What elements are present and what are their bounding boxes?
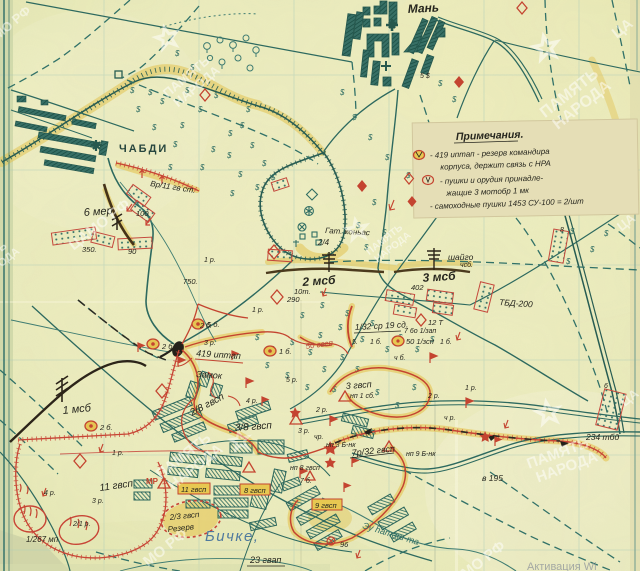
svg-text:Замок: Замок <box>196 369 223 381</box>
svg-text:234 тбд: 234 тбд <box>585 432 620 442</box>
svg-text:$: $ <box>261 159 267 168</box>
svg-text:$: $ <box>147 88 153 97</box>
svg-text:2 р.: 2 р. <box>315 407 328 414</box>
svg-text:$: $ <box>394 401 400 410</box>
svg-text:750.: 750. <box>183 277 198 286</box>
svg-text:$: $ <box>254 183 260 192</box>
svg-text:3 гвсп: 3 гвсп <box>345 379 372 391</box>
svg-text:чсб.: чсб. <box>460 261 473 269</box>
svg-text:$: $ <box>129 86 135 95</box>
svg-text:1/267 мп.: 1/267 мп. <box>26 535 60 544</box>
svg-text:1 б.: 1 б. <box>370 338 382 346</box>
svg-text:$: $ <box>239 121 245 130</box>
svg-text:2/1 р.: 2/1 р. <box>72 521 91 528</box>
svg-text:9 гвсп: 9 гвсп <box>315 501 337 510</box>
svg-text:$: $ <box>359 335 365 344</box>
svg-text:МР: МР <box>146 477 159 486</box>
svg-text:$: $ <box>565 257 571 266</box>
svg-text:$: $ <box>321 365 327 374</box>
svg-text:2 б.: 2 б. <box>199 322 212 330</box>
svg-text:$: $ <box>299 311 305 320</box>
svg-text:$: $ <box>589 245 595 254</box>
svg-text:$: $ <box>414 345 420 354</box>
svg-text:$: $ <box>374 388 380 397</box>
svg-text:$: $ <box>229 189 235 198</box>
svg-text:$: $ <box>264 361 270 370</box>
svg-text:$: $ <box>179 121 185 130</box>
svg-text:Активация Wi: Активация Wi <box>527 561 597 571</box>
svg-text:$: $ <box>437 79 443 88</box>
svg-text:8 гвсп: 8 гвсп <box>244 486 266 495</box>
svg-text:$: $ <box>237 170 243 179</box>
svg-text:$: $ <box>304 383 310 392</box>
svg-text:$: $ <box>451 95 457 104</box>
svg-text:$: $ <box>197 105 203 114</box>
svg-text:1 б.: 1 б. <box>440 338 452 346</box>
svg-text:ч р.: ч р. <box>444 415 455 422</box>
svg-text:в 195: в 195 <box>482 473 503 483</box>
svg-text:2 р.: 2 р. <box>427 393 440 400</box>
svg-text:100: 100 <box>136 209 149 218</box>
svg-text:$: $ <box>226 151 232 160</box>
svg-text:$: $ <box>384 345 390 354</box>
svg-text:$: $ <box>367 133 373 142</box>
svg-text:50 1/зсп: 50 1/зсп <box>406 337 434 346</box>
svg-text:нп 9 Б-нк: нп 9 Б-нк <box>406 451 436 458</box>
svg-text:290: 290 <box>286 295 300 304</box>
svg-text:96: 96 <box>340 540 349 549</box>
svg-text:$: $ <box>411 383 417 392</box>
svg-text:2/4: 2/4 <box>317 238 330 247</box>
svg-text:7 6о 1/зап: 7 6о 1/зап <box>404 328 436 335</box>
svg-text:3 р.: 3 р. <box>92 498 104 505</box>
svg-text:2 б.: 2 б. <box>99 423 113 432</box>
svg-text:2 мсб: 2 мсб <box>301 273 336 289</box>
svg-text:$: $ <box>159 97 165 106</box>
svg-text:$: $ <box>245 105 251 114</box>
svg-text:$: $ <box>317 331 323 340</box>
svg-text:4 р.: 4 р. <box>44 490 56 497</box>
svg-text:$: $ <box>254 333 260 342</box>
svg-text:12 Т: 12 Т <box>428 318 444 327</box>
svg-text:3 р.: 3 р. <box>298 428 310 435</box>
svg-text:$: $ <box>172 140 178 149</box>
svg-text:23 гвап: 23 гвап <box>249 555 281 565</box>
svg-text:$: $ <box>319 301 325 310</box>
svg-text:5 р.: 5 р. <box>286 377 298 384</box>
svg-text:1 р.: 1 р. <box>112 450 124 457</box>
svg-text:Мань: Мань <box>407 0 439 16</box>
svg-text:1 р.: 1 р. <box>252 307 264 314</box>
svg-text:6: 6 <box>604 383 608 390</box>
svg-text:$: $ <box>603 229 609 238</box>
svg-text:шайго: шайго <box>448 252 474 262</box>
svg-text:1 р.: 1 р. <box>204 257 216 264</box>
svg-text:$: $ <box>199 163 205 172</box>
svg-text:нп 8 гвсп: нп 8 гвсп <box>290 465 320 472</box>
svg-text:ч б.: ч б. <box>394 354 406 362</box>
svg-text:5 $: 5 $ <box>420 73 430 80</box>
svg-text:1 р.: 1 р. <box>465 385 477 392</box>
svg-text:$: $ <box>270 173 276 182</box>
svg-text:3 р.: 3 р. <box>204 340 216 347</box>
svg-text:3 мсб: 3 мсб <box>422 269 456 285</box>
svg-text:$: $ <box>213 91 219 100</box>
svg-text:$: $ <box>569 227 575 236</box>
svg-text:$: $ <box>339 88 345 97</box>
svg-text:$: $ <box>210 145 216 154</box>
svg-text:90: 90 <box>128 247 137 256</box>
svg-text:1 б.: 1 б. <box>279 347 292 356</box>
svg-text:$: $ <box>249 141 255 150</box>
svg-text:$: $ <box>405 171 411 180</box>
svg-text:чр.: чр. <box>314 434 324 441</box>
svg-text:$: $ <box>351 113 357 122</box>
svg-text:$: $ <box>167 163 173 172</box>
svg-text:$: $ <box>384 153 390 162</box>
svg-text:$: $ <box>227 129 233 138</box>
svg-text:Бичке,: Бичке, <box>205 528 259 545</box>
svg-text:$: $ <box>337 323 343 332</box>
svg-text:4 р.: 4 р. <box>246 398 258 405</box>
svg-text:$: $ <box>371 198 377 207</box>
svg-text:5.: 5. <box>352 339 358 346</box>
svg-text:$: $ <box>135 105 141 114</box>
svg-text:нп 1 сб.: нп 1 сб. <box>350 392 375 400</box>
svg-text:ЧАБДИ: ЧАБДИ <box>119 143 168 155</box>
svg-text:2 б.: 2 б. <box>161 342 175 351</box>
svg-text:8: 8 <box>560 227 564 234</box>
svg-text:$: $ <box>151 123 157 132</box>
svg-text:7 б.: 7 б. <box>300 477 312 485</box>
svg-text:$: $ <box>339 353 345 362</box>
svg-text:$: $ <box>174 49 180 58</box>
